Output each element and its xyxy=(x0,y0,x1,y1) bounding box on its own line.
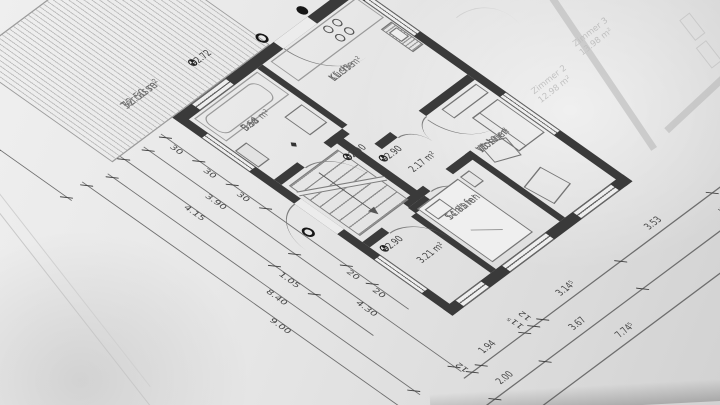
dimension-tick xyxy=(106,176,119,178)
dimension-label: 9.00 xyxy=(267,317,293,336)
dimension-tick xyxy=(80,184,93,186)
dimension-label: 1.05 xyxy=(276,271,302,290)
dimension-label: 30 xyxy=(168,143,186,156)
dimension-tick xyxy=(407,390,420,392)
dimension-label: 4.30 xyxy=(354,299,380,318)
dimension-tick xyxy=(308,293,321,295)
dimension-tick xyxy=(518,332,531,334)
dimension-tick xyxy=(475,364,488,366)
dimension-tick xyxy=(159,137,172,139)
dimension-label: 25 xyxy=(716,204,720,217)
dimension-tick xyxy=(636,288,649,290)
dimension-tick xyxy=(614,260,627,262)
dimension-tick xyxy=(192,160,205,162)
blueprint-photo: Zimmer 3 13.98 m² Zimmer 2 12.98 m² Terr… xyxy=(0,0,720,405)
dimension-tick xyxy=(117,158,130,160)
floor-plan: Terrasse 32.50 m² +2.72 xyxy=(0,0,720,405)
dimension-label: 20 xyxy=(370,287,388,300)
dimension-tick xyxy=(259,207,272,209)
dimension-label: 4.15 xyxy=(182,204,208,223)
dimension-tick xyxy=(706,192,719,194)
dimension-tick xyxy=(288,253,301,255)
level-marker-flur: +2.90 xyxy=(378,244,391,253)
dimension-tick xyxy=(539,360,552,362)
dimension-tick xyxy=(466,371,479,373)
dimension-tick xyxy=(226,184,239,186)
dimension-label: 3.90 xyxy=(203,193,229,212)
window-wohnen-bottom xyxy=(573,184,620,219)
dimension-tick xyxy=(527,325,540,327)
dimension-label: 30 xyxy=(234,191,252,204)
dimension-tick xyxy=(142,149,155,151)
dimension-tick xyxy=(60,196,73,198)
dimension-label: 8.40 xyxy=(264,288,290,307)
dimension-tick xyxy=(366,283,379,285)
level-marker-diele: +2.90 xyxy=(377,154,390,163)
door-arc-entrance xyxy=(268,204,332,250)
dimension-label: 3.75 xyxy=(0,137,3,156)
dimension-tick xyxy=(340,265,353,267)
floor-drain-icon xyxy=(291,142,297,146)
wall-schlafen-top xyxy=(445,150,477,174)
dimension-tick xyxy=(268,265,281,267)
room-area-diele: 2.17 m² xyxy=(406,150,439,174)
window-flur-bottom xyxy=(455,281,490,307)
dimension-label: 30 xyxy=(201,167,219,180)
dimension-tick xyxy=(536,318,549,320)
dimension-label: 20 xyxy=(344,268,362,281)
